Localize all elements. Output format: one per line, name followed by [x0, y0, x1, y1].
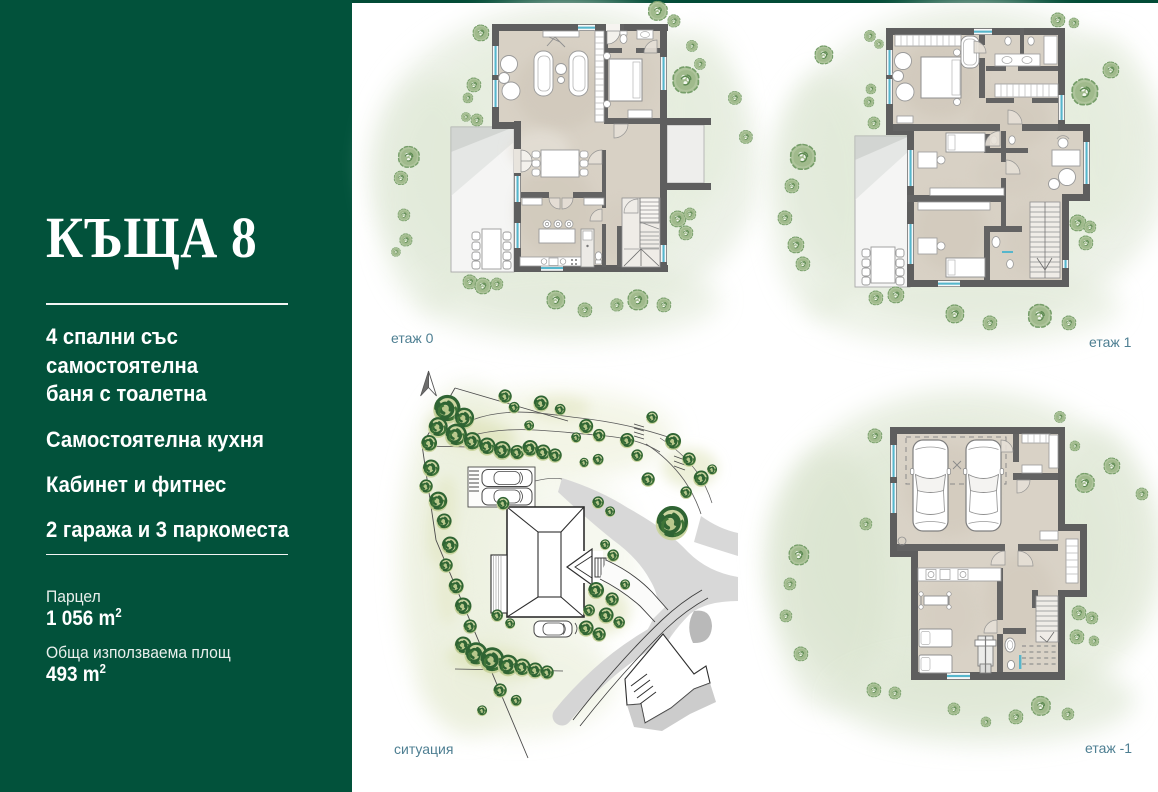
svg-text:етаж 1: етаж 1 [1089, 334, 1132, 350]
svg-text:етаж 0: етаж 0 [391, 330, 434, 346]
svg-text:етаж -1: етаж -1 [1085, 740, 1132, 756]
svg-text:ситуация: ситуация [394, 741, 453, 757]
